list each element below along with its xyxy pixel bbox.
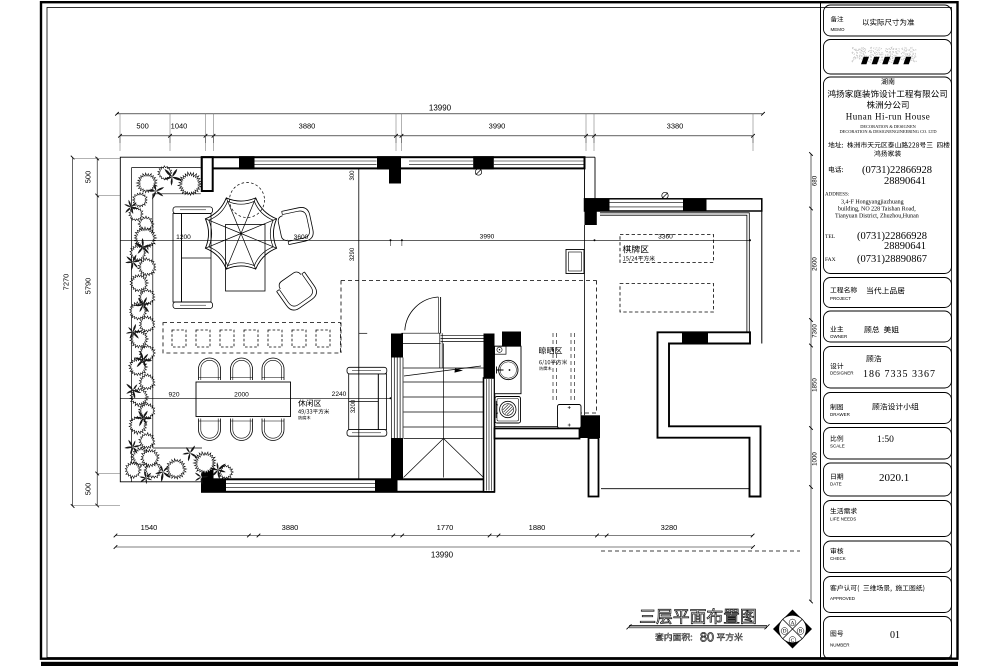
- svg-text:500: 500: [84, 483, 93, 496]
- svg-text:920: 920: [168, 391, 179, 398]
- svg-text:Hunan Hi-run House: Hunan Hi-run House: [846, 112, 931, 122]
- svg-text:1850: 1850: [812, 378, 819, 392]
- svg-text:28890641: 28890641: [884, 176, 926, 187]
- svg-text:500: 500: [136, 122, 149, 131]
- svg-text:3990: 3990: [489, 122, 506, 131]
- svg-text:3380: 3380: [667, 122, 684, 131]
- svg-text:2240: 2240: [332, 391, 347, 398]
- svg-text:3880: 3880: [299, 122, 316, 131]
- svg-text:1:50: 1:50: [877, 435, 894, 445]
- svg-text:186 7335 3367: 186 7335 3367: [863, 369, 936, 380]
- svg-text:Tianyuan District, Zhuzhou,Hun: Tianyuan District, Zhuzhou,Hunan: [835, 214, 919, 220]
- svg-text:300: 300: [350, 170, 356, 181]
- svg-text:1880: 1880: [529, 523, 546, 532]
- svg-text:PROJECT: PROJECT: [830, 296, 851, 301]
- svg-text:OWNER: OWNER: [830, 334, 848, 339]
- svg-text:TEL: TEL: [825, 234, 836, 240]
- svg-text:80: 80: [700, 630, 714, 644]
- svg-text:DESIGNER: DESIGNER: [830, 371, 854, 376]
- svg-text:1040: 1040: [171, 122, 188, 131]
- svg-text:7360: 7360: [812, 324, 819, 338]
- svg-text:SCALE: SCALE: [830, 444, 845, 449]
- svg-text:680: 680: [812, 175, 819, 186]
- svg-text:13990: 13990: [429, 104, 452, 113]
- svg-text:3200: 3200: [351, 399, 357, 413]
- svg-text:NUMBER: NUMBER: [830, 643, 850, 648]
- svg-text:DATE: DATE: [830, 482, 842, 487]
- svg-text:28890641: 28890641: [884, 241, 926, 252]
- svg-text:1200: 1200: [176, 234, 191, 241]
- svg-text:500: 500: [84, 171, 93, 184]
- svg-text:01: 01: [890, 630, 900, 641]
- svg-text:3290: 3290: [350, 247, 356, 261]
- svg-text:D: D: [783, 629, 787, 635]
- svg-text:3280: 3280: [661, 523, 678, 532]
- svg-text:5790: 5790: [84, 278, 93, 295]
- svg-text:3,4-F Hongyangjiazhuang: 3,4-F Hongyangjiazhuang: [841, 200, 904, 206]
- svg-text:13990: 13990: [431, 551, 454, 560]
- svg-text:DECORATION & DESIGNENGINEERING: DECORATION & DESIGNENGINEERING CO. LTD: [839, 129, 936, 134]
- svg-text:7270: 7270: [62, 274, 71, 291]
- svg-text:2020.1: 2020.1: [879, 472, 909, 484]
- svg-text:2600: 2600: [812, 257, 819, 271]
- svg-text:ADDRESS:: ADDRESS:: [825, 193, 849, 198]
- svg-text:MEMO: MEMO: [831, 27, 845, 32]
- svg-text:LIFE NEEDS: LIFE NEEDS: [830, 517, 856, 522]
- svg-text:1000: 1000: [812, 452, 819, 466]
- svg-text:1770: 1770: [437, 523, 454, 532]
- svg-text:CHECK: CHECK: [830, 556, 846, 561]
- svg-text:(0731)22866928: (0731)22866928: [862, 165, 932, 176]
- svg-text:(0731)28890867: (0731)28890867: [857, 254, 927, 265]
- svg-text:building, NO 228 Taishan Road,: building, NO 228 Taishan Road,: [838, 207, 916, 213]
- svg-text:2000: 2000: [234, 391, 249, 398]
- svg-text:DRAWER: DRAWER: [830, 412, 851, 417]
- svg-text:1540: 1540: [141, 523, 158, 532]
- svg-text:3600: 3600: [294, 234, 309, 241]
- svg-text:3360: 3360: [658, 233, 673, 240]
- svg-text:3990: 3990: [480, 233, 495, 240]
- svg-text:APPROVED: APPROVED: [830, 596, 856, 601]
- svg-text:FAX: FAX: [825, 257, 836, 263]
- svg-text:3880: 3880: [282, 523, 299, 532]
